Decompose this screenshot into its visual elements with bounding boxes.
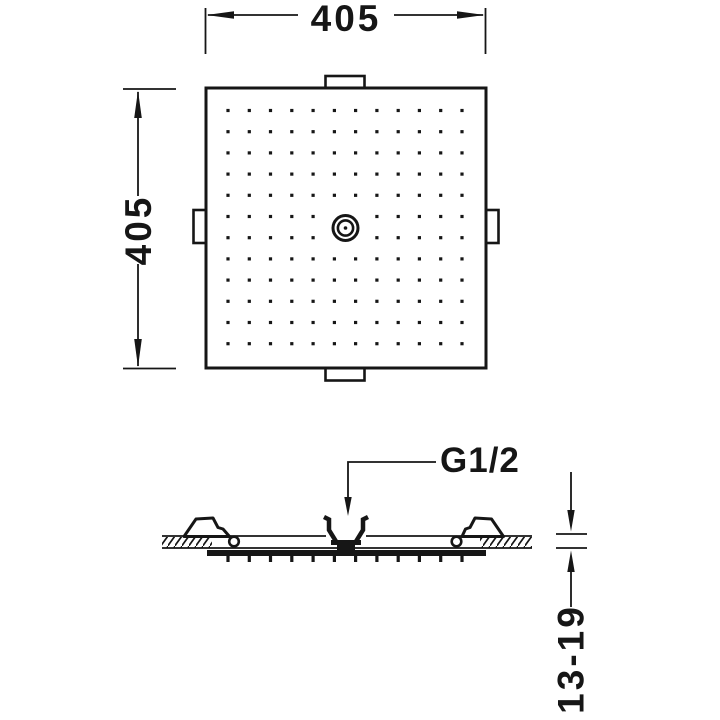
nozzle-dot [439,321,442,324]
nozzle-dot [248,194,251,197]
nozzle-dot [460,151,463,154]
nozzle-dot [312,215,315,218]
nozzle-dot [269,257,272,260]
nozzle-dot [290,194,293,197]
nozzle-dot [418,194,421,197]
nozzle-dot [248,236,251,239]
showerhead-side-view [162,517,532,562]
nozzle-dot [354,151,357,154]
nozzle-dot [418,257,421,260]
nozzle-dot [375,236,378,239]
technical-drawing-canvas: 405 405 [0,0,720,720]
nozzle-dot [312,342,315,345]
nozzle-dot [312,130,315,133]
nozzle-dot [375,173,378,176]
depth-dimension-label: 13-19 [551,604,592,714]
nozzle-dot [375,342,378,345]
nozzle-dot [226,236,229,239]
nozzle-dot [290,130,293,133]
nozzle-dot [269,321,272,324]
nozzle-dot [333,257,336,260]
nozzle-dot [375,257,378,260]
nozzle-dot [354,257,357,260]
nozzle-dot [397,342,400,345]
nozzle-dot [226,109,229,112]
nozzle-dot [460,342,463,345]
nozzle-dot [375,300,378,303]
nozzle-dot [290,279,293,282]
nozzle-dot [248,257,251,260]
nozzle-dot [375,194,378,197]
leader-arrow-icon [344,497,351,516]
nozzle-dot [375,215,378,218]
nozzle-dot [397,236,400,239]
nozzle-ticks [226,556,463,562]
nozzle-dot [439,151,442,154]
nozzle-dot [226,215,229,218]
nozzle-dot [418,151,421,154]
nozzle-tick [375,556,378,562]
nozzle-dot [460,257,463,260]
depth-dimension: 13-19 [551,472,592,714]
nozzle-tick [312,556,315,562]
nozzle-dot [248,130,251,133]
nozzle-dot [418,236,421,239]
nozzle-dot [290,300,293,303]
connector-left-wall [324,517,337,543]
nozzle-dot [333,279,336,282]
nozzle-dot [312,173,315,176]
bracket-roller-left-icon [229,537,239,547]
width-dimension-label: 405 [311,0,382,39]
nozzle-dot [354,173,357,176]
center-outlet [333,216,358,241]
nozzle-dot [269,173,272,176]
mount-bracket-left [184,518,230,537]
nozzle-dot [439,257,442,260]
nozzle-dot [418,109,421,112]
nozzle-dot [248,151,251,154]
nozzle-tick [226,556,229,562]
nozzle-dot [460,194,463,197]
nozzle-dot [312,257,315,260]
nozzle-tick [354,556,357,562]
nozzle-dot [333,151,336,154]
arrow-right-icon [457,11,485,19]
leader-line [348,462,436,500]
arrow-up-icon [567,551,574,573]
nozzle-dot [312,321,315,324]
nozzle-dot [397,151,400,154]
nozzle-dot [354,194,357,197]
nozzle-dot [397,109,400,112]
nozzle-dot [439,130,442,133]
nozzle-dot [226,257,229,260]
nozzle-dot [397,279,400,282]
nozzle-dot [226,151,229,154]
nozzle-dot [460,300,463,303]
connector-right-wall [355,517,368,543]
nozzle-dot [375,130,378,133]
outlet-center-dot-icon [344,226,348,230]
nozzle-dot [460,279,463,282]
mount-tab-right [486,210,499,243]
nozzle-dot [248,173,251,176]
nozzle-dot [418,321,421,324]
nozzle-dot [290,321,293,324]
connector-base [337,544,355,553]
nozzle-dot [397,130,400,133]
arrow-up-icon [134,91,142,119]
mount-tab-left [194,210,207,243]
nozzle-dot [269,279,272,282]
nozzle-tick [460,556,463,562]
nozzle-dot [418,215,421,218]
nozzle-dot [354,130,357,133]
nozzle-dot [269,300,272,303]
nozzle-tick [333,556,336,562]
showerhead-spec-drawing: 405 405 [0,0,720,720]
nozzle-dot [418,173,421,176]
nozzle-dot [439,194,442,197]
nozzle-dot [312,300,315,303]
nozzle-dot [397,257,400,260]
nozzle-dot [333,109,336,112]
nozzle-dot [460,215,463,218]
nozzle-dot [226,279,229,282]
nozzle-dot [226,300,229,303]
nozzle-dot [333,194,336,197]
nozzle-dot [354,300,357,303]
mount-tab-bottom [326,368,365,381]
thread-size-label: G1/2 [440,441,520,480]
nozzle-dot [439,109,442,112]
nozzle-tick [269,556,272,562]
nozzle-dot [290,342,293,345]
top-width-dimension: 405 [206,0,486,54]
nozzle-dot [354,321,357,324]
nozzle-dot [375,151,378,154]
showerhead-top-view [194,76,499,381]
nozzle-dot [248,342,251,345]
nozzle-dot [248,215,251,218]
nozzle-dot [290,236,293,239]
nozzle-dot [226,194,229,197]
nozzle-dot [312,109,315,112]
nozzle-dot [418,342,421,345]
nozzle-dot [269,342,272,345]
nozzle-dot [354,279,357,282]
nozzle-dot [269,215,272,218]
nozzle-tick [418,556,421,562]
nozzle-tick [248,556,251,562]
nozzle-dot [397,194,400,197]
nozzle-dot [397,215,400,218]
nozzle-dot [290,151,293,154]
nozzle-dot [312,151,315,154]
nozzle-dot [418,300,421,303]
arrow-down-icon [134,339,142,367]
nozzle-dot [397,321,400,324]
nozzle-tick [397,556,400,562]
nozzle-dot [333,342,336,345]
nozzle-dot [375,279,378,282]
nozzle-dot [312,236,315,239]
nozzle-dot [312,194,315,197]
nozzle-dot [290,109,293,112]
nozzle-dot [290,215,293,218]
nozzle-dot [460,321,463,324]
nozzle-dot [354,342,357,345]
nozzle-dot [439,279,442,282]
nozzle-dot [333,130,336,133]
nozzle-dot [312,279,315,282]
nozzle-dot [269,194,272,197]
nozzle-tick [439,556,442,562]
top-height-dimension: 405 [118,89,176,369]
nozzle-dot [375,109,378,112]
nozzle-dot [226,173,229,176]
nozzle-dot [248,279,251,282]
nozzle-dot [290,257,293,260]
nozzle-dot [354,109,357,112]
nozzle-dot [333,300,336,303]
nozzle-dot [290,173,293,176]
nozzle-dot [226,321,229,324]
nozzle-dot [375,321,378,324]
nozzle-dot [439,300,442,303]
nozzle-dot [333,321,336,324]
nozzle-dot [269,130,272,133]
nozzle-dot [418,130,421,133]
mount-bracket-right [462,518,504,537]
nozzle-dot [269,109,272,112]
arrow-down-icon [567,510,574,532]
nozzle-tick [290,556,293,562]
ceiling-hatch-right [480,537,532,548]
nozzle-dot [226,130,229,133]
nozzle-dot [269,151,272,154]
nozzle-dot [333,173,336,176]
nozzle-dot [397,300,400,303]
nozzle-dot [248,109,251,112]
bracket-roller-right-icon [452,537,462,547]
nozzle-dot [439,173,442,176]
nozzle-dot [248,300,251,303]
thread-callout: G1/2 [344,441,520,516]
nozzle-dot [460,173,463,176]
nozzle-dot [418,279,421,282]
height-dimension-label: 405 [118,195,159,266]
nozzle-dot [460,130,463,133]
arrow-left-icon [207,11,235,19]
ceiling-hatch-left [162,537,212,548]
nozzle-dot [269,236,272,239]
nozzle-dot [226,342,229,345]
nozzle-dot [397,173,400,176]
nozzle-dot [460,109,463,112]
nozzle-dot [439,342,442,345]
nozzle-dot [439,215,442,218]
nozzle-dot [460,236,463,239]
nozzle-dot [439,236,442,239]
nozzle-dot [248,321,251,324]
